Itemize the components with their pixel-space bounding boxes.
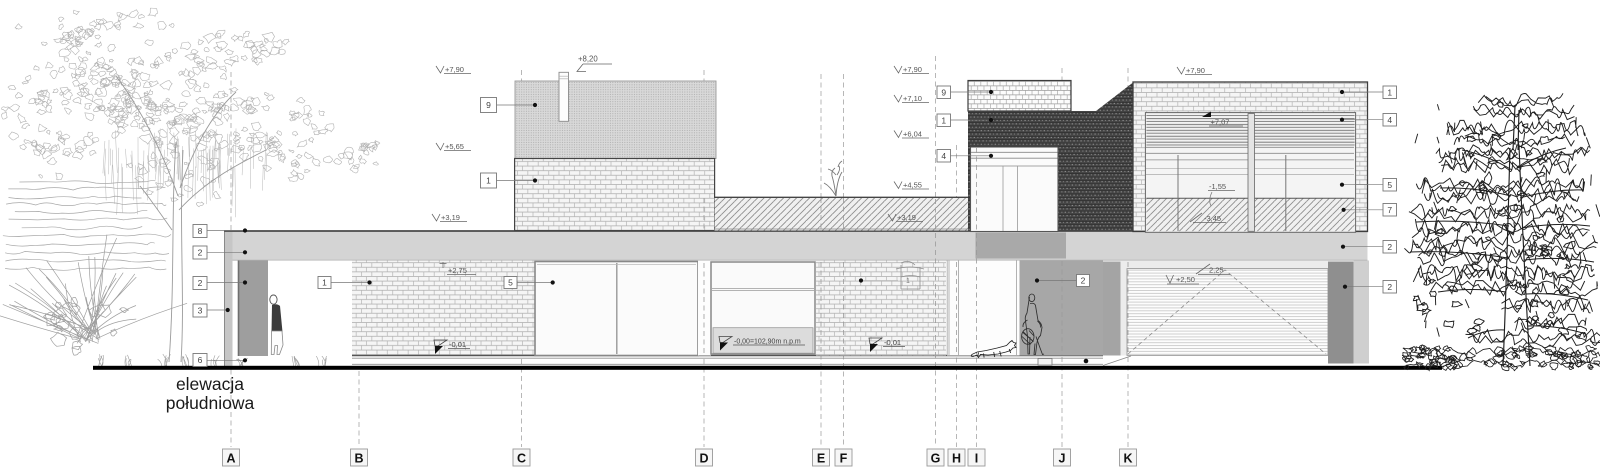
svg-text:J: J bbox=[1059, 452, 1066, 466]
svg-text:K: K bbox=[1123, 452, 1132, 466]
svg-text:1: 1 bbox=[941, 115, 946, 125]
svg-text:2,25: 2,25 bbox=[1209, 266, 1224, 275]
svg-text:4: 4 bbox=[1387, 115, 1392, 125]
svg-text:A: A bbox=[226, 452, 235, 466]
svg-text:I: I bbox=[975, 452, 978, 466]
svg-text:+7,90: +7,90 bbox=[1186, 66, 1205, 75]
svg-text:5: 5 bbox=[1387, 180, 1392, 190]
svg-text:1: 1 bbox=[486, 176, 491, 186]
svg-text:południowa: południowa bbox=[166, 393, 255, 413]
svg-text:5: 5 bbox=[508, 278, 513, 288]
svg-text:-0,01: -0,01 bbox=[884, 338, 901, 347]
svg-text:-3,45: -3,45 bbox=[1204, 214, 1221, 223]
svg-text:+6,04: +6,04 bbox=[903, 130, 922, 139]
svg-text:1: 1 bbox=[906, 278, 910, 285]
svg-text:2: 2 bbox=[1387, 282, 1392, 292]
svg-text:3: 3 bbox=[198, 306, 203, 316]
svg-text:-0,01: -0,01 bbox=[449, 340, 466, 349]
svg-text:H: H bbox=[952, 452, 961, 466]
svg-text:elewacja: elewacja bbox=[176, 374, 244, 394]
svg-text:2: 2 bbox=[1081, 276, 1086, 286]
svg-text:4: 4 bbox=[941, 151, 946, 161]
svg-text:6: 6 bbox=[198, 355, 203, 365]
svg-text:+2,75: +2,75 bbox=[448, 266, 467, 275]
svg-text:+3,19: +3,19 bbox=[897, 213, 916, 222]
svg-text:2: 2 bbox=[198, 248, 203, 258]
svg-text:2: 2 bbox=[1387, 242, 1392, 252]
svg-text:B: B bbox=[354, 452, 363, 466]
svg-text:G: G bbox=[931, 452, 941, 466]
svg-text:1: 1 bbox=[1387, 87, 1392, 97]
svg-text:-1,55: -1,55 bbox=[1209, 182, 1226, 191]
svg-text:1: 1 bbox=[322, 278, 327, 288]
svg-text:9: 9 bbox=[941, 87, 946, 97]
svg-text:C: C bbox=[517, 452, 526, 466]
svg-text:E: E bbox=[817, 452, 825, 466]
svg-text:+3,19: +3,19 bbox=[441, 213, 460, 222]
svg-text:F: F bbox=[840, 452, 848, 466]
svg-text:+4,55: +4,55 bbox=[903, 181, 922, 190]
svg-text:+8,20: +8,20 bbox=[578, 55, 598, 64]
svg-text:+7,90: +7,90 bbox=[903, 65, 922, 74]
svg-text:+5,65: +5,65 bbox=[445, 142, 464, 151]
svg-text:+7,10: +7,10 bbox=[903, 94, 922, 103]
svg-text:D: D bbox=[699, 452, 708, 466]
svg-text:+7,90: +7,90 bbox=[445, 65, 464, 74]
svg-text:2: 2 bbox=[198, 278, 203, 288]
svg-text:-0,00=102,90m n.p.m: -0,00=102,90m n.p.m bbox=[734, 339, 801, 346]
svg-text:9: 9 bbox=[486, 100, 491, 110]
svg-text:+7,07: +7,07 bbox=[1211, 118, 1230, 127]
svg-text:8: 8 bbox=[198, 226, 203, 236]
svg-text:7: 7 bbox=[1387, 205, 1392, 215]
svg-text:+2,50: +2,50 bbox=[1176, 275, 1195, 284]
